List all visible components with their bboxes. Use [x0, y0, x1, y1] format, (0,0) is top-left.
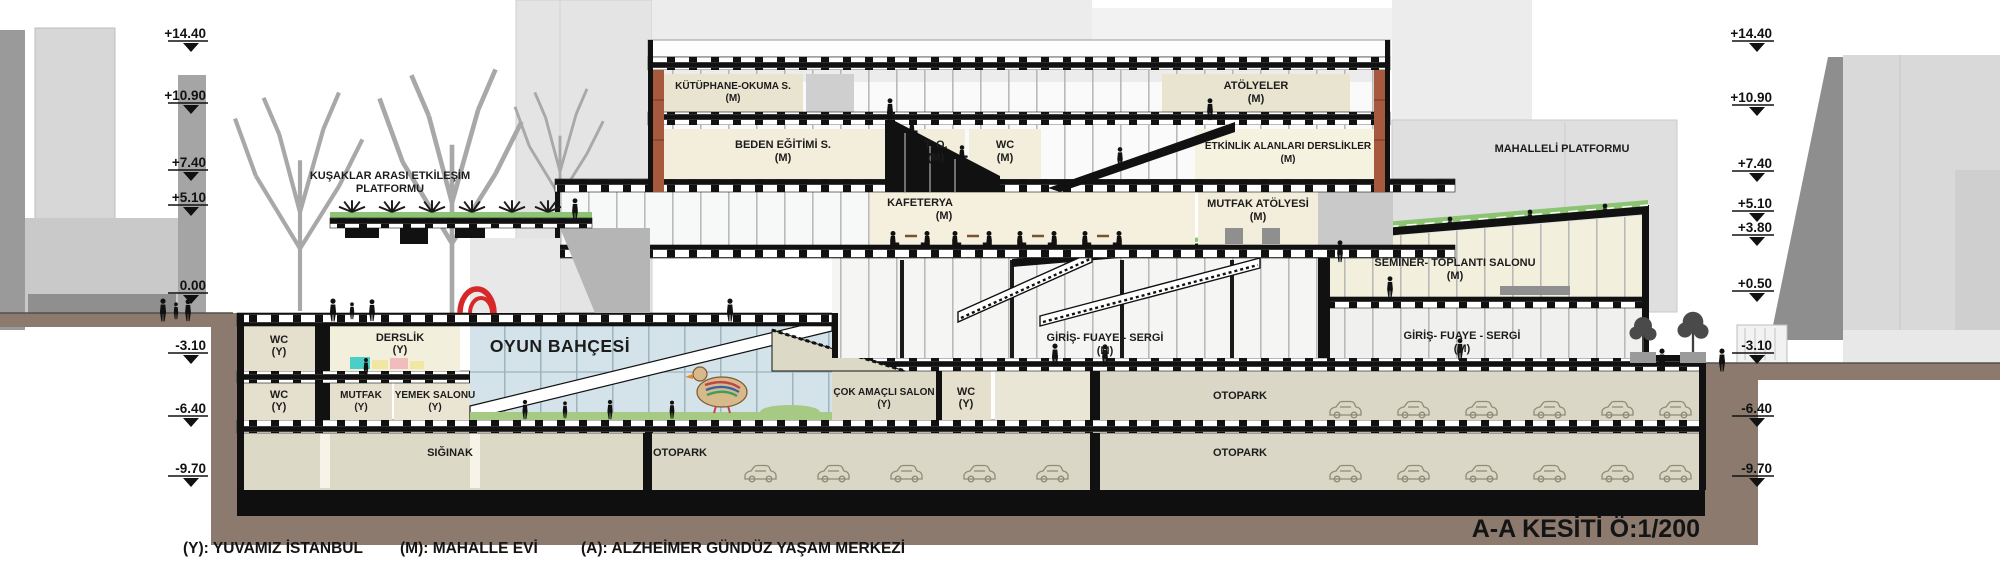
elev-right-5: +0.50 [1738, 276, 1772, 291]
room-tag-giris-merkez: (M) [1097, 345, 1114, 357]
elev-right-8: -9.70 [1741, 461, 1772, 476]
elev-left-4: 0.00 [180, 278, 206, 293]
room-tag-yemek: (Y) [428, 402, 441, 413]
room-label-seminer: SEMİNER- TOPLANTI SALONU [1374, 256, 1535, 269]
elev-right-6: -3.10 [1741, 338, 1772, 353]
room-label-atolyeler: ATÖLYELER [1224, 79, 1289, 92]
elev-left-7: -9.70 [175, 461, 206, 476]
room-tag-wc-m: (M) [997, 152, 1014, 164]
room-tag-beden: (M) [775, 152, 792, 164]
label-oyun-bahcesi: OYUN BAHÇESİ [490, 336, 630, 356]
room-tag-etkinlik: (M) [1281, 154, 1296, 165]
room-label-etkinlik: ETKİNLİK ALANLARI DERSLİKLER [1205, 139, 1372, 152]
room-label-kutuphane: KÜTÜPHANE-OKUMA S. [675, 79, 791, 92]
room-label-wc-y-ust: WC [270, 334, 288, 346]
room-label-otopark-orta: OTOPARK [653, 447, 707, 459]
room-label-siginak: SIĞINAK [427, 446, 473, 459]
label-kusaklar-line1: KUŞAKLAR ARASI ETKİLEŞİM [310, 169, 470, 182]
room-label-otopark-alt: OTOPARK [1213, 447, 1267, 459]
room-label-wc-m: WC [996, 139, 1014, 151]
room-label-giris-merkez: GİRİŞ- FUAYE - SERGİ [1047, 331, 1164, 344]
legend-y: (Y): YUVAMIZ İSTANBUL [183, 540, 363, 557]
elev-left-6: -6.40 [175, 401, 206, 416]
room-tag-mutfak-atolyesi: (M) [1250, 211, 1267, 223]
foundation-band [237, 490, 1705, 516]
elev-left-0: +14.40 [164, 26, 206, 41]
room-label-wc-y-orta: WC [270, 389, 288, 401]
room-label-derslik: DERSLİK [376, 331, 424, 344]
elev-right-7: -6.40 [1741, 401, 1772, 416]
room-tag-to: (M) [928, 152, 945, 164]
room-label-to: T. O. [924, 139, 947, 151]
room-tag-wc-y-ust: (Y) [272, 346, 287, 358]
room-label-giris-sag: GİRİŞ- FUAYE - SERGİ [1404, 329, 1521, 342]
elev-right-4: +3.80 [1738, 220, 1772, 235]
elev-right-2: +7.40 [1738, 156, 1772, 171]
room-label-kafeterya: KAFETERYA [887, 197, 953, 209]
room-label-yemek: YEMEK SALONU [395, 390, 476, 401]
elev-right-3: +5.10 [1738, 196, 1772, 211]
room-tag-derslik: (Y) [393, 344, 408, 356]
section-drawing: KÜTÜPHANE-OKUMA S. (M) ATÖLYELER (M) BED… [0, 0, 2000, 566]
room-label-otopark-ust: OTOPARK [1213, 390, 1267, 402]
room-tag-atolyeler: (M) [1248, 93, 1265, 105]
room-tag-kafeterya: (M) [936, 210, 953, 222]
label-mahalleli-platformu: MAHALLELİ PLATFORMU [1495, 142, 1630, 155]
room-label-mutfak-y: MUTFAK [340, 390, 382, 401]
room-tag-kutuphane: (M) [726, 93, 741, 104]
architectural-section-page: KÜTÜPHANE-OKUMA S. (M) ATÖLYELER (M) BED… [0, 0, 2000, 566]
drawing-title: A-A KESİTİ Ö:1/200 [1472, 514, 1700, 543]
room-tag-mutfak-y: (Y) [354, 402, 367, 413]
room-tag-giris-sag: (M) [1454, 343, 1471, 355]
middle-block [555, 179, 1455, 258]
room-tag-seminer: (M) [1447, 270, 1464, 282]
room-otopark-center [650, 432, 1090, 490]
room-label-wc-y-salon: WC [957, 386, 975, 398]
legend-a: (A): ALZHEİMER GÜNDÜZ YAŞAM MERKEZİ [581, 540, 905, 557]
room-label-beden: BEDEN EĞİTİMİ S. [735, 138, 831, 151]
title-block: A-A KESİTİ Ö:1/200 [1472, 514, 1700, 543]
elev-right-1: +10.90 [1730, 90, 1772, 105]
room-siginak [243, 432, 643, 490]
elev-right-0: +14.40 [1730, 26, 1772, 41]
elev-left-2: +7.40 [172, 155, 206, 170]
legend-m: (M): MAHALLE EVİ [400, 540, 538, 557]
label-kusaklar-line2: PLATFORMU [356, 183, 424, 195]
elev-left-5: -3.10 [175, 338, 206, 353]
room-label-cok-amacli: ÇOK AMAÇLI SALON [833, 387, 934, 398]
room-tag-wc-y-orta: (Y) [272, 401, 287, 413]
elev-left-3: +5.10 [172, 190, 206, 205]
elev-left-1: +10.90 [164, 88, 206, 103]
room-tag-cok-amacli: (Y) [877, 399, 890, 410]
room-tag-wc-y-salon: (Y) [959, 398, 974, 410]
top-block [648, 40, 1390, 192]
room-label-mutfak-atolyesi: MUTFAK ATÖLYESİ [1207, 197, 1309, 210]
